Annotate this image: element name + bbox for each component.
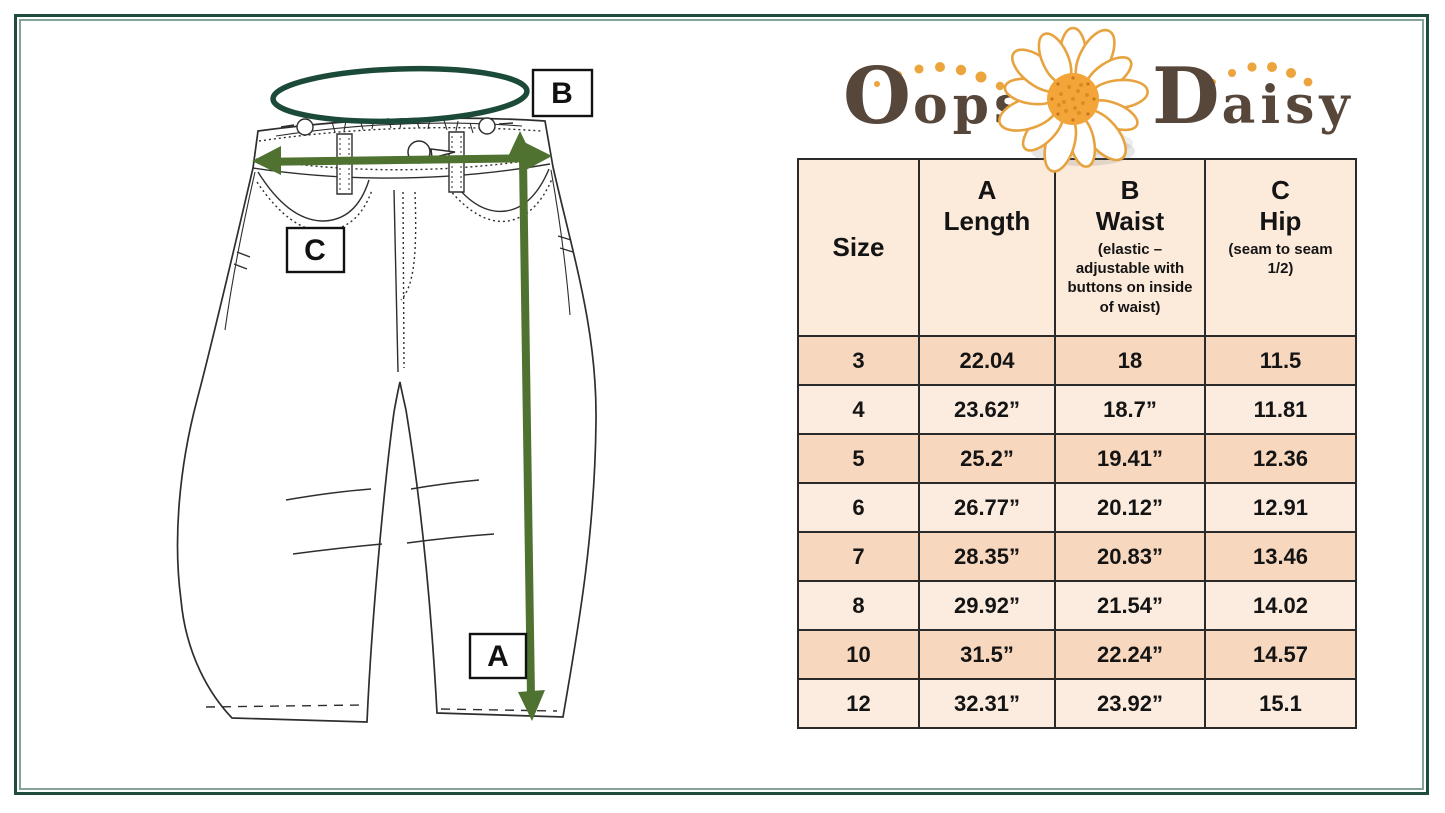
table-row: 10 31.5” 22.24” 14.57 <box>798 630 1356 679</box>
size-cell: 8 <box>798 581 919 630</box>
table-row: 5 25.2” 19.41” 12.36 <box>798 434 1356 483</box>
label-b: B <box>551 77 573 110</box>
column-label: Size <box>799 231 918 264</box>
table-row: 3 22.04 18 11.5 <box>798 336 1356 385</box>
waist-cell: 23.92” <box>1055 679 1205 728</box>
table-row: 7 28.35” 20.83” 13.46 <box>798 532 1356 581</box>
column-header-waist: B Waist (elastic – adjustable with butto… <box>1055 159 1205 336</box>
label-c: C <box>304 234 326 267</box>
length-cell: 25.2” <box>919 434 1055 483</box>
column-note: (seam to seam 1/2) <box>1206 240 1355 278</box>
size-cell: 4 <box>798 385 919 434</box>
length-cell: 28.35” <box>919 532 1055 581</box>
waist-cell: 20.83” <box>1055 532 1205 581</box>
size-cell: 7 <box>798 532 919 581</box>
column-letter: C <box>1206 176 1355 205</box>
length-cell: 22.04 <box>919 336 1055 385</box>
hip-cell: 11.5 <box>1205 336 1356 385</box>
pants-diagram: B C A <box>0 0 760 813</box>
column-note: (elastic – adjustable with buttons on in… <box>1056 240 1204 317</box>
column-label: Hip <box>1206 205 1355 238</box>
header-row: Size A Length B Waist (elastic – adjusta… <box>798 159 1356 336</box>
length-cell: 23.62” <box>919 385 1055 434</box>
waist-cell: 20.12” <box>1055 483 1205 532</box>
waist-cell: 22.24” <box>1055 630 1205 679</box>
table-row: 6 26.77” 20.12” 12.91 <box>798 483 1356 532</box>
length-cell: 31.5” <box>919 630 1055 679</box>
logo-word-daisy: Daisy <box>1152 58 1355 136</box>
column-label: Waist <box>1056 205 1204 238</box>
label-a: A <box>487 640 509 673</box>
column-header-length: A Length <box>919 159 1055 336</box>
waist-cell: 21.54” <box>1055 581 1205 630</box>
hip-cell: 14.57 <box>1205 630 1356 679</box>
table-row: 12 32.31” 23.92” 15.1 <box>798 679 1356 728</box>
size-chart-table: Size A Length B Waist (elastic – adjusta… <box>797 158 1357 729</box>
hip-cell: 13.46 <box>1205 532 1356 581</box>
daisy-flower-icon <box>985 15 1165 185</box>
column-header-hip: C Hip (seam to seam 1/2) <box>1205 159 1356 336</box>
hip-cell: 12.36 <box>1205 434 1356 483</box>
length-cell: 29.92” <box>919 581 1055 630</box>
hip-cell: 12.91 <box>1205 483 1356 532</box>
column-header-size: Size <box>798 159 919 336</box>
waist-cell: 18.7” <box>1055 385 1205 434</box>
hip-cell: 15.1 <box>1205 679 1356 728</box>
column-label: Length <box>920 205 1054 238</box>
length-cell: 32.31” <box>919 679 1055 728</box>
waist-cell: 19.41” <box>1055 434 1205 483</box>
length-cell: 26.77” <box>919 483 1055 532</box>
table-row: 4 23.62” 18.7” 11.81 <box>798 385 1356 434</box>
size-cell: 5 <box>798 434 919 483</box>
hip-cell: 14.02 <box>1205 581 1356 630</box>
waist-cell: 18 <box>1055 336 1205 385</box>
waist-measure-ellipse <box>272 65 528 125</box>
size-cell: 10 <box>798 630 919 679</box>
table-row: 8 29.92” 21.54” 14.02 <box>798 581 1356 630</box>
hip-cell: 11.81 <box>1205 385 1356 434</box>
size-cell: 12 <box>798 679 919 728</box>
size-cell: 6 <box>798 483 919 532</box>
size-cell: 3 <box>798 336 919 385</box>
